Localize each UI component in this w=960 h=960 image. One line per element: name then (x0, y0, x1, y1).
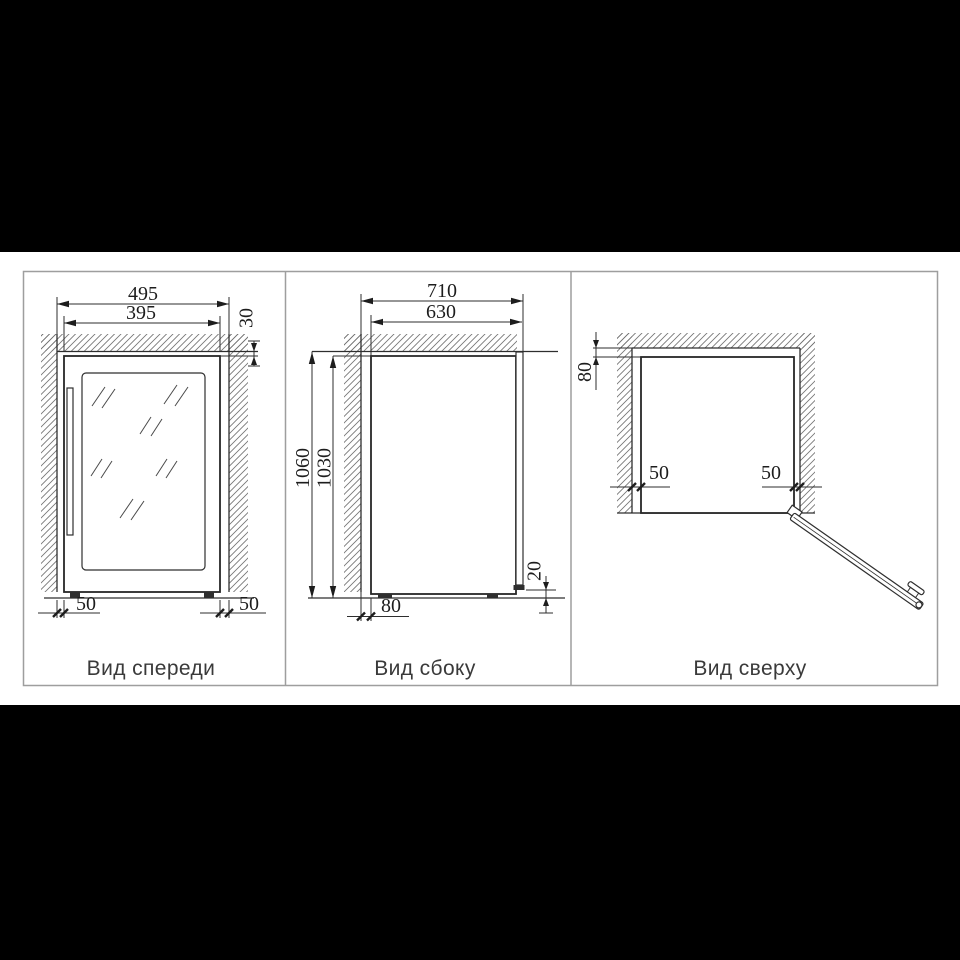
dim-label-side-unit-height: 1030 (314, 448, 336, 488)
side-wall-top-hatch (344, 334, 517, 351)
dim-label-top-left-gap: 50 (649, 462, 669, 484)
dim-label-side-bottom-gap: 20 (524, 561, 546, 581)
dim-label-front-left-gap: 50 (76, 593, 96, 615)
letterbox-top (0, 0, 960, 252)
dim-label-front-top-gap: 30 (236, 308, 258, 328)
dim-label-side-niche-height: 1060 (292, 448, 314, 488)
dim-label-top-right-gap: 50 (761, 462, 781, 484)
top-wall-back-hatch (617, 333, 815, 348)
side-unit-outline (371, 356, 516, 594)
letterbox-bottom (0, 705, 960, 960)
screenshot-canvas: 495 395 30 50 (0, 0, 960, 960)
front-wall-left-hatch (41, 334, 57, 592)
side-door-panel (516, 352, 523, 585)
top-unit-outline (641, 357, 794, 513)
dim-label-side-unit-depth: 630 (426, 301, 456, 323)
dim-label-top-back-gap: 80 (574, 362, 596, 382)
side-door-bottom-cap (514, 585, 525, 590)
caption-top-view: Вид сверху (693, 657, 806, 680)
dim-label-front-right-gap: 50 (239, 593, 259, 615)
dim-label-front-unit-width: 395 (126, 302, 156, 324)
front-wall-top-hatch (41, 334, 248, 351)
caption-side-view: Вид сбоку (374, 657, 476, 680)
side-wall-back-hatch (344, 334, 361, 592)
front-wall-right-hatch (229, 334, 248, 592)
top-wall-left-hatch (617, 333, 632, 513)
front-glass-door (82, 373, 205, 570)
dim-label-side-niche-depth: 710 (427, 280, 457, 302)
front-foot-right (204, 592, 214, 598)
dim-label-side-back-gap: 80 (381, 595, 401, 617)
caption-front-view: Вид спереди (87, 657, 216, 680)
front-door-handle (67, 388, 73, 535)
